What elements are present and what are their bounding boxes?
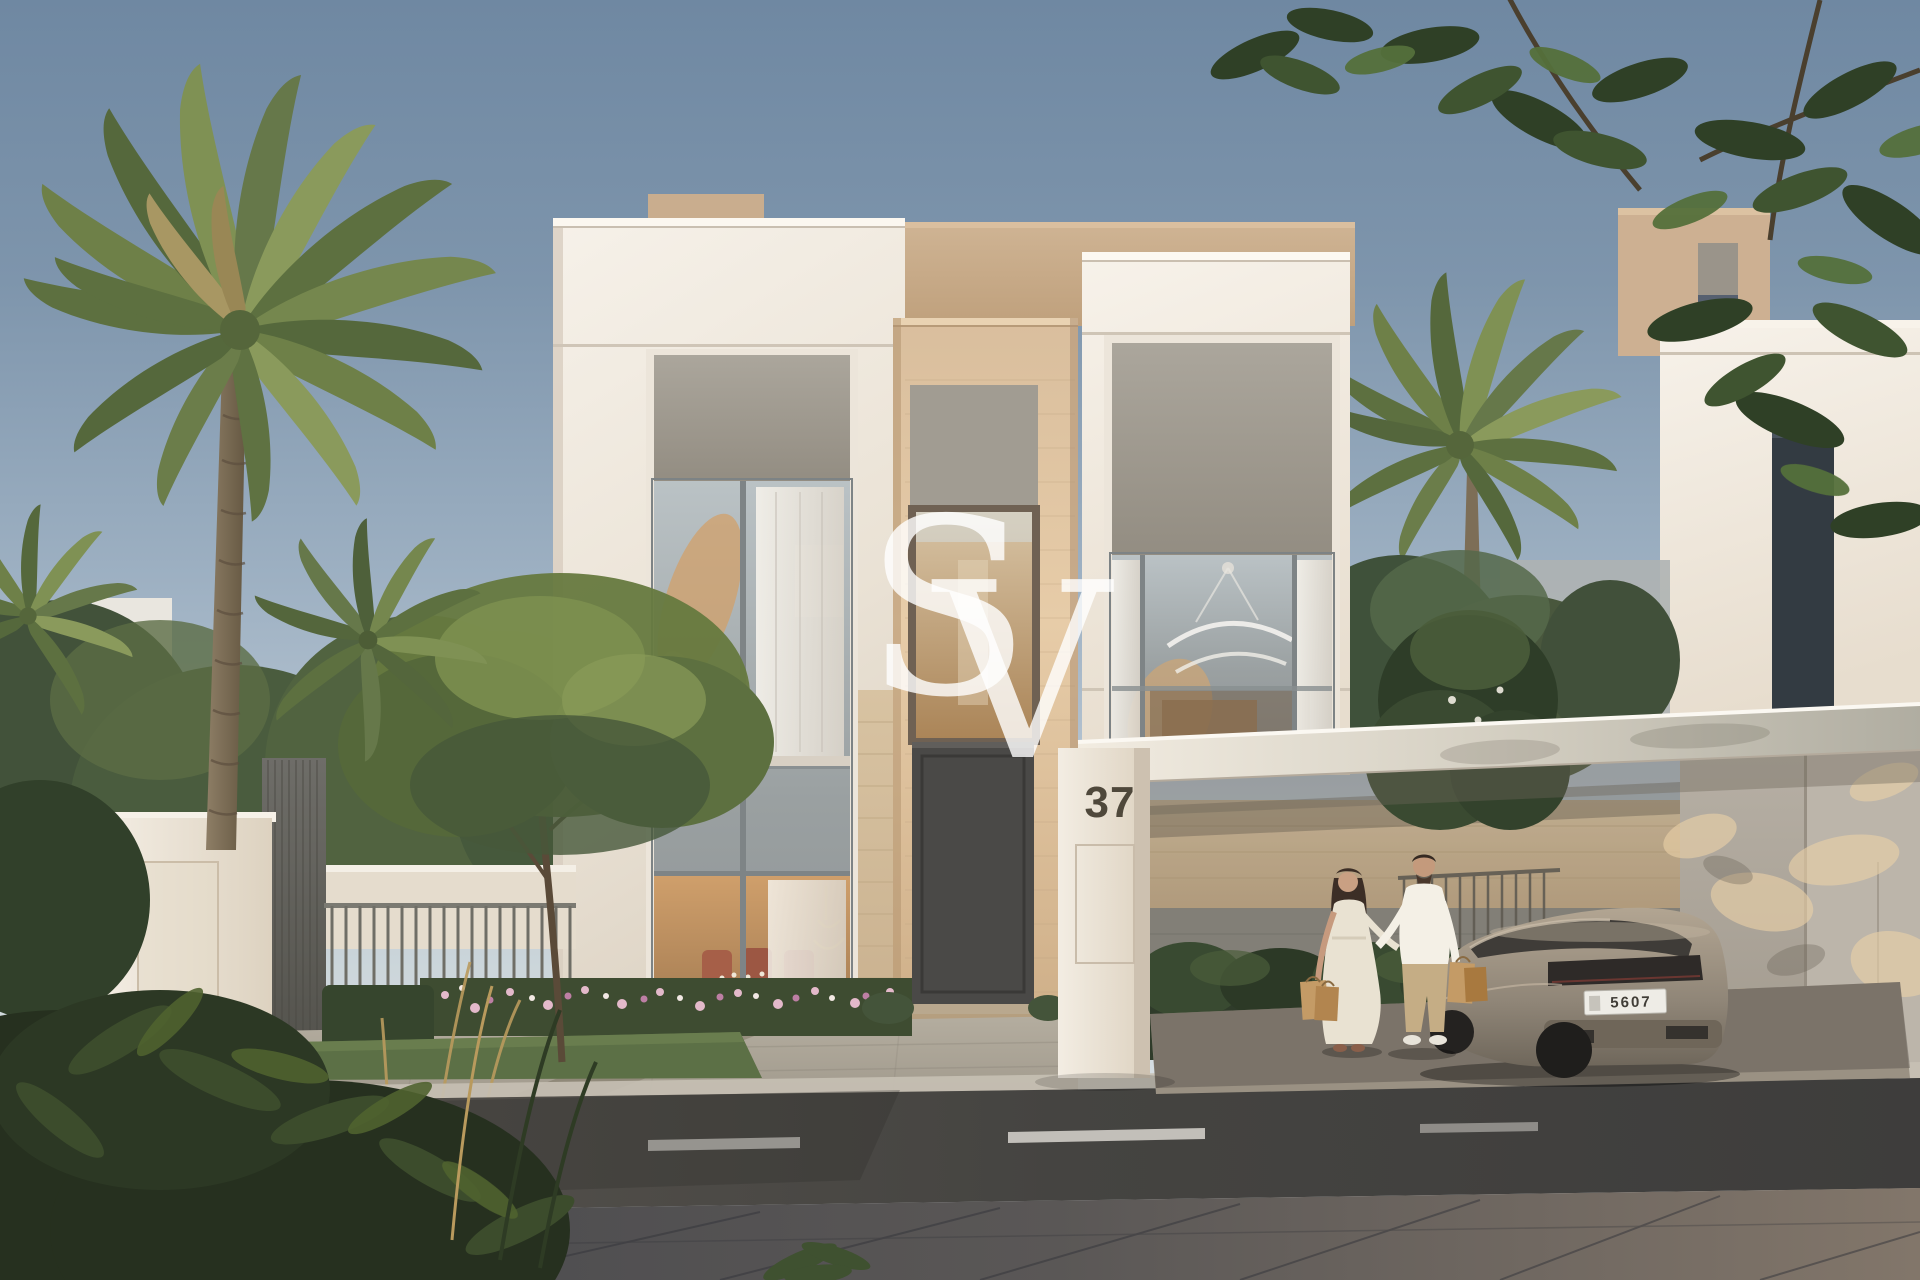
window-right-bay	[1104, 335, 1340, 783]
flower-bed	[420, 978, 912, 1036]
watermark-letter-v: V	[934, 551, 1110, 795]
license-plate-number: 5607	[1600, 994, 1662, 1011]
house-number: 37	[1078, 781, 1142, 825]
right-wing	[1082, 252, 1350, 783]
shopping-bags-woman	[1300, 977, 1339, 1021]
villa-render-scene: S V 37 5607	[0, 0, 1920, 1280]
